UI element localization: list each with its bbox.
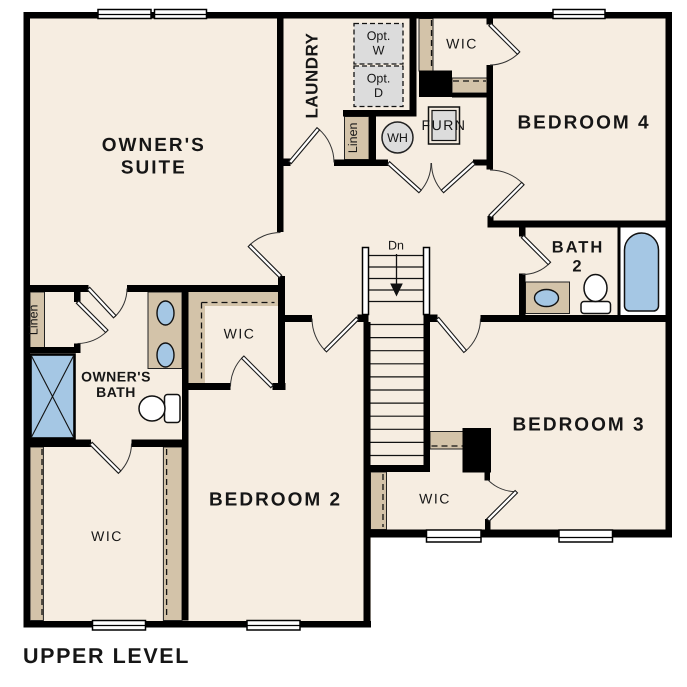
svg-text:W: W [373, 44, 385, 58]
svg-text:FURN: FURN [422, 117, 467, 133]
svg-text:D: D [374, 86, 383, 100]
svg-text:Opt.: Opt. [367, 29, 391, 43]
svg-text:BATH: BATH [96, 384, 136, 400]
svg-text:BEDROOM 3: BEDROOM 3 [512, 415, 645, 436]
svg-text:Linen: Linen [346, 122, 360, 153]
svg-text:UPPER LEVEL: UPPER LEVEL [23, 644, 190, 668]
svg-text:LAUNDRY: LAUNDRY [303, 32, 322, 118]
svg-text:WIC: WIC [224, 326, 256, 342]
svg-text:WIC: WIC [91, 528, 123, 544]
svg-text:OWNER'S: OWNER'S [81, 369, 151, 385]
svg-text:BEDROOM 4: BEDROOM 4 [517, 113, 650, 134]
svg-text:Linen: Linen [26, 304, 40, 335]
svg-text:SUITE: SUITE [121, 158, 187, 179]
svg-text:WIC: WIC [446, 36, 478, 52]
svg-text:BEDROOM 2: BEDROOM 2 [209, 490, 342, 511]
svg-text:BATH: BATH [552, 239, 605, 257]
svg-text:2: 2 [572, 258, 583, 276]
svg-text:WH: WH [387, 131, 408, 145]
svg-text:OWNER'S: OWNER'S [102, 135, 206, 156]
svg-text:Opt.: Opt. [367, 72, 391, 86]
svg-text:WIC: WIC [419, 491, 451, 507]
svg-text:Dn: Dn [388, 239, 404, 253]
